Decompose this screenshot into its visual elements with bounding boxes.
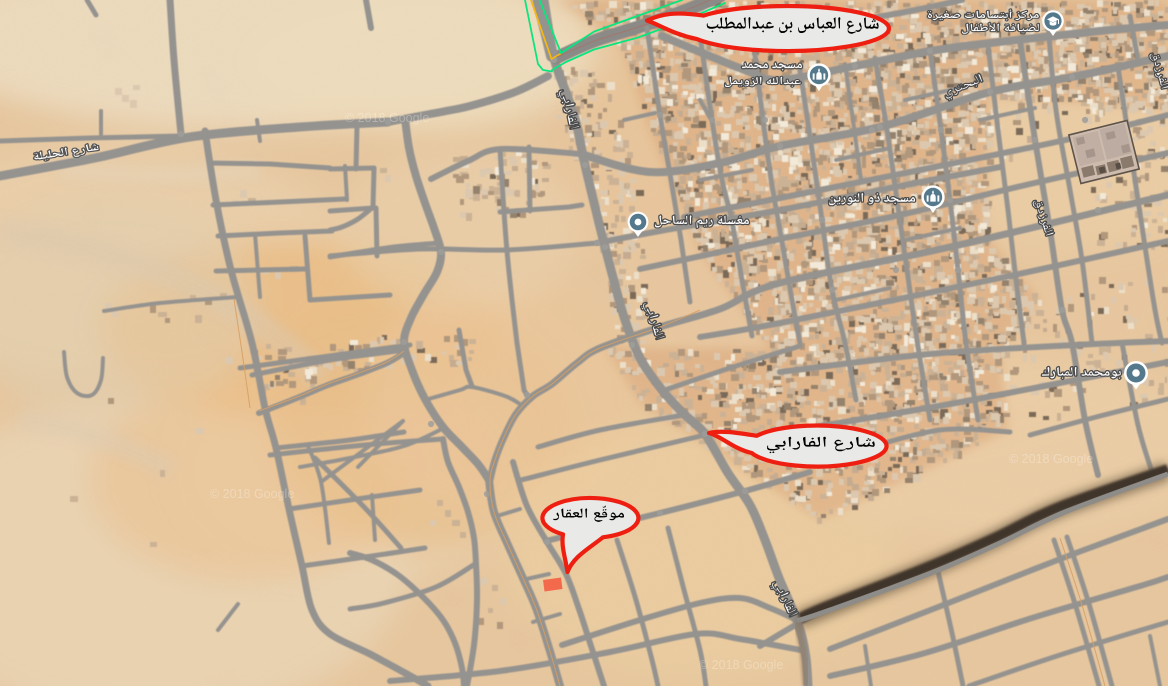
svg-text:© 2018 Google: © 2018 Google [699,658,783,672]
svg-text:© 2018 Google: © 2018 Google [1009,452,1093,466]
svg-text:© 2018 Google: © 2018 Google [210,487,294,501]
svg-text:© 2018 Google: © 2018 Google [345,111,429,125]
